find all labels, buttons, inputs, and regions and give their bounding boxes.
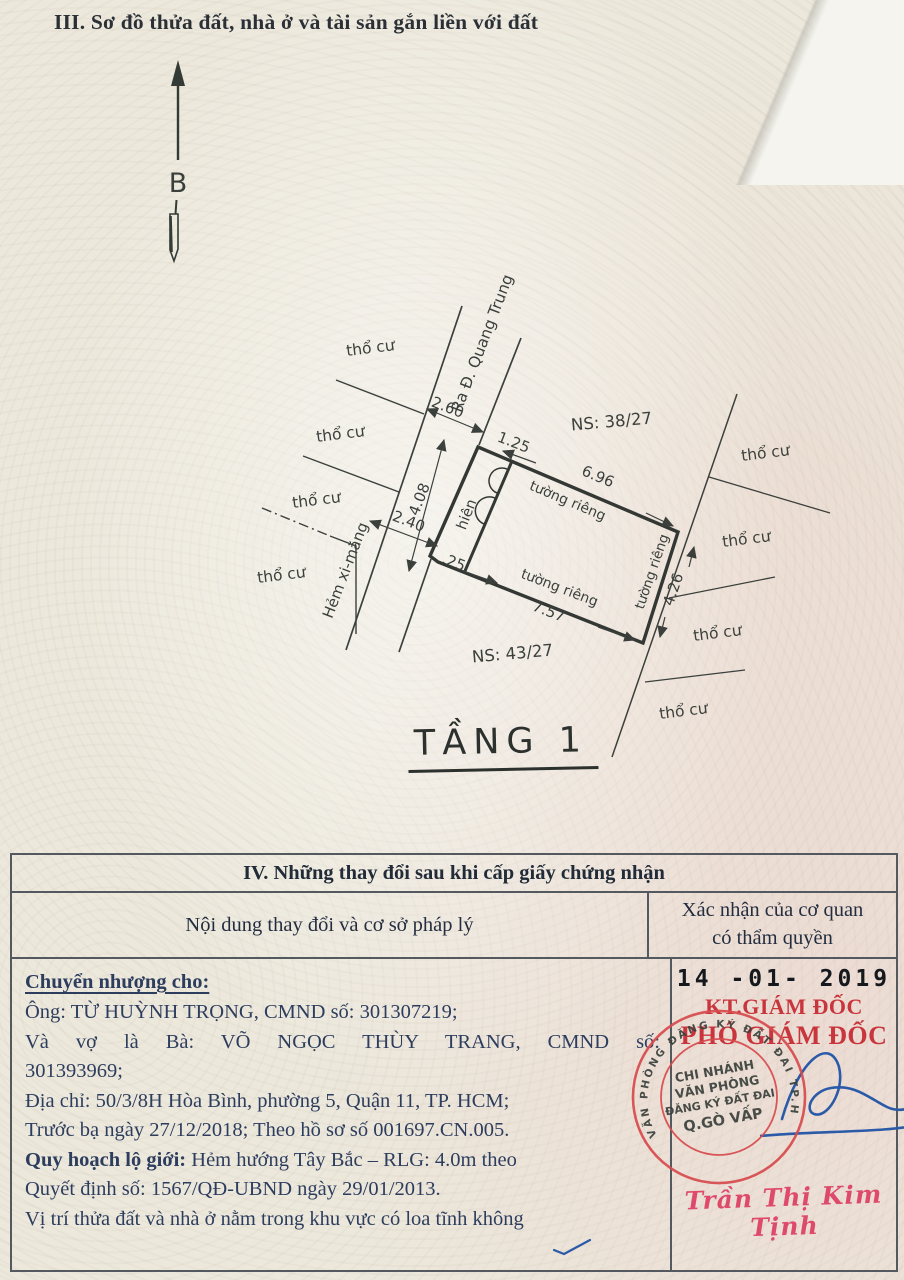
ns-bottom-label: NS: 43/27 [471,641,554,667]
neighbor-label: thổ cư [291,488,343,512]
alley-label: Hẻm xi-măng [319,520,372,621]
change-line: Địa chỉ: 50/3/8H Hòa Bình, phường 5, Quậ… [25,1087,660,1117]
section4-title: IV. Những thay đổi sau khi cấp giấy chứn… [12,855,896,893]
change-line: 301393969; [25,1057,660,1087]
change-line: Ông: TỪ HUỲNH TRỌNG, CMND số: 301307219; [25,998,660,1028]
plot-diagram: B [0,0,904,840]
change-line: Vị trí thửa đất và nhà ở nằm trong khu v… [25,1205,660,1235]
change-content-cell: Chuyển nhượng cho: Ông: TỪ HUỲNH TRỌNG, … [12,959,672,1270]
change-line: Và vợ là Bà: VÕ NGỌC THÙY TRANG, CMND số… [25,1028,660,1058]
col1-header: Nội dung thay đổi và cơ sở pháp lý [12,893,649,957]
north-arrow [170,60,185,261]
change-line: Quyết định số: 1567/QĐ-UBND ngày 29/01/2… [25,1175,660,1205]
date-stamp: 14 -01- 2019 [672,966,896,992]
col2-header-line1: Xác nhận của cơ quan [682,897,864,925]
north-label: B [169,168,188,199]
col2-header: Xác nhận của cơ quan có thẩm quyền [649,893,896,957]
change-lines: Ông: TỪ HUỲNH TRỌNG, CMND số: 301307219;… [25,998,660,1234]
col2-header-line2: có thẩm quyền [712,925,833,953]
neighbor-label: thổ cư [740,441,792,465]
changes-table: IV. Những thay đổi sau khi cấp giấy chứn… [10,853,898,1272]
neighbor-label: thổ cư [658,699,710,723]
neighbor-label: thổ cư [692,621,744,645]
change-line: Quy hoạch lộ giới: Hẻm hướng Tây Bắc – R… [25,1146,660,1176]
official-seal: VĂN PHÒNG ĐĂNG KÝ ĐẤT ĐAI TP.HỒ CHÍ MINH… [627,1005,812,1190]
ns-top-label: NS: 38/27 [570,409,653,435]
dim-jog-top: 1.25 [495,428,533,457]
transfer-heading: Chuyển nhượng cho: [25,971,660,994]
neighbor-label: thổ cư [315,422,367,446]
signer-name: Trần Thị Kim Tịnh [671,1179,897,1245]
neighbor-label: thổ cư [256,563,308,587]
certificate-page: III. Sơ đồ thửa đất, nhà ở và tài sản gắ… [0,0,904,1280]
neighbor-label: thổ cư [721,527,773,551]
neighbor-label: thổ cư [345,336,397,360]
street-direction-label: Ra Đ. Quang Trung [448,272,517,415]
confirmation-cell: 14 -01- 2019 KT.GIÁM ĐỐC PHÓ GIÁM ĐỐC [672,959,896,1270]
wall-label-bottom: tường riêng [519,566,600,610]
floor-label: TẦNG 1 [408,720,599,773]
checkmark-icon [552,1237,592,1257]
change-line: Trước bạ ngày 27/12/2018; Theo hồ sơ số … [25,1116,660,1146]
dim-bottom: 7.57 [530,597,568,626]
dim-top: 6.96 [579,462,617,492]
